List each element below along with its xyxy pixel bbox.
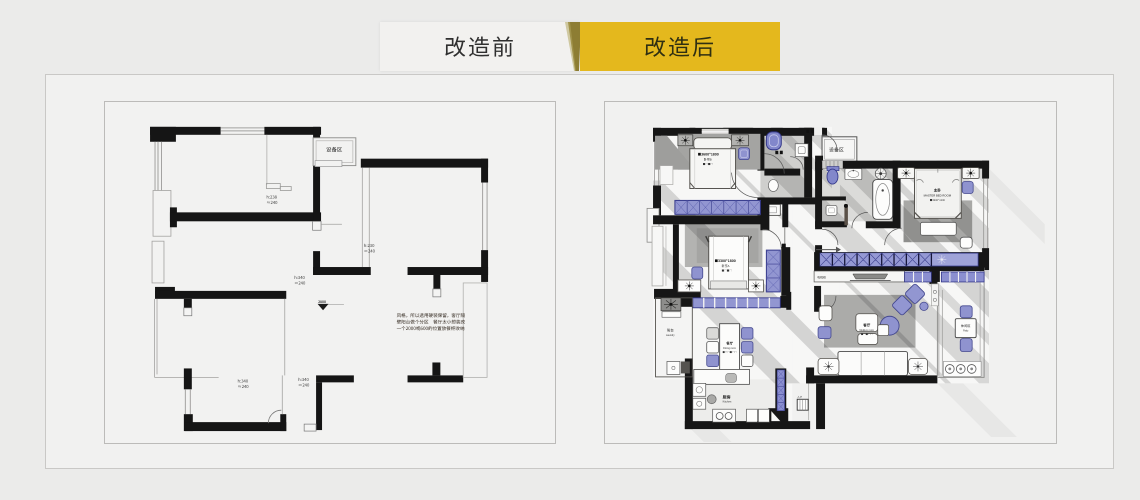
svg-text:卧室A: 卧室A <box>722 264 730 268</box>
svg-text:■□■□: ■□■□ <box>722 269 733 273</box>
svg-text:MASTER BED ROOM: MASTER BED ROOM <box>924 193 952 197</box>
svg-text:Patio: Patio <box>963 328 969 332</box>
svg-text:■□■□: ■□■□ <box>703 162 714 166</box>
svg-text:休闲区: 休闲区 <box>961 323 971 328</box>
svg-text:餐厅: 餐厅 <box>726 341 733 346</box>
svg-text:■3600*1800: ■3600*1800 <box>698 152 719 157</box>
svg-text:一个2000或600的位置放餐柜收纳: 一个2000或600的位置放餐柜收纳 <box>397 326 465 332</box>
svg-text:设备区: 设备区 <box>326 146 343 154</box>
svg-text:≈240: ≈240 <box>294 280 306 286</box>
svg-text:≈240: ≈240 <box>298 382 310 388</box>
svg-text:Laundry: Laundry <box>666 333 675 337</box>
svg-text:≈240: ≈240 <box>364 249 376 255</box>
svg-text:电视柜: 电视柜 <box>817 275 826 279</box>
svg-text:设备区: 设备区 <box>829 147 844 154</box>
svg-text:2800: 2800 <box>318 299 326 304</box>
svg-text:■□■□□: ■□■□□ <box>861 332 873 336</box>
svg-text:风格，所以选用硬装保留，客厅隔: 风格，所以选用硬装保留，客厅隔 <box>397 313 466 319</box>
svg-text:Kitchen: Kitchen <box>723 400 732 404</box>
svg-text:≈240: ≈240 <box>266 200 278 206</box>
svg-text:≈240: ≈240 <box>238 384 250 390</box>
svg-text:入户: 入户 <box>797 395 803 399</box>
svg-text:阳台: 阳台 <box>667 328 674 333</box>
svg-text:卧室B: 卧室B <box>704 158 712 162</box>
svg-text:■□□■□□: ■□□■□□ <box>722 350 737 354</box>
svg-text:■3300*1800: ■3300*1800 <box>715 258 736 263</box>
svg-text:壁阳台做个分区 餐厅太小想装改: 壁阳台做个分区 餐厅太小想装改 <box>397 320 466 326</box>
svg-text:■3600*1200: ■3600*1200 <box>930 198 946 202</box>
